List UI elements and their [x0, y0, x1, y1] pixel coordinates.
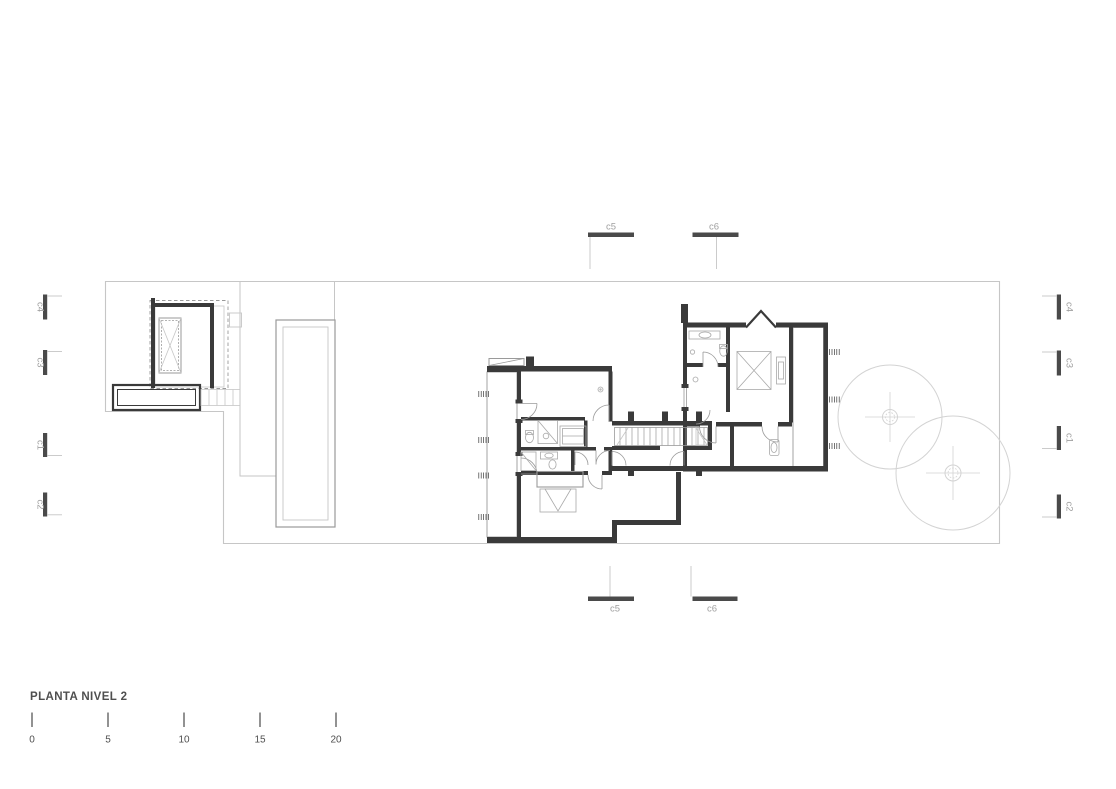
shelf: [777, 357, 786, 384]
section-label: c1: [35, 440, 46, 450]
toilet: [549, 460, 556, 469]
section-marker-c2-right: c2: [1042, 495, 1075, 519]
scale-tick-label: 0: [29, 735, 35, 746]
right-deck: [793, 328, 824, 467]
section-label: c5: [610, 604, 620, 615]
site-boundary: [106, 282, 1000, 544]
section-label: c6: [707, 604, 717, 615]
scale-tick-label: 5: [105, 735, 111, 746]
section-label: c3: [1064, 358, 1075, 368]
scale-tick-label: 20: [330, 735, 342, 746]
section-marker-c6-top: c6: [693, 222, 739, 270]
section-marker-c3-left: c3: [35, 350, 63, 375]
section-label: c6: [709, 222, 719, 233]
pool: [276, 320, 335, 527]
page-title: PLANTA NIVEL 2: [30, 691, 127, 703]
section-label: c5: [606, 222, 616, 233]
entry-steps: [201, 390, 240, 406]
section-marker-c3-right: c3: [1042, 351, 1075, 376]
floor-plan-drawing: c5 c6 c5 c6 c4 c3 c1 c2 c4: [0, 0, 1116, 789]
section-label: c4: [35, 302, 46, 312]
section-label: c1: [1064, 433, 1075, 443]
garage-roof-structure: [113, 298, 242, 410]
section-marker-c1-left: c1: [35, 433, 63, 457]
elevator-shaft: [159, 318, 181, 373]
section-marker-c4-right: c4: [1042, 295, 1075, 320]
bed: [540, 489, 576, 512]
staircase: [615, 428, 708, 446]
bay-window-peak: [746, 311, 776, 328]
section-marker-c2-left: c2: [35, 493, 63, 517]
wall: [151, 298, 155, 388]
toilet: [526, 432, 534, 442]
scale-bar: 0 5 10 15 20: [29, 713, 342, 746]
chimney: [526, 357, 534, 367]
main-building: [479, 304, 839, 543]
section-marker-c1-right: c1: [1042, 426, 1075, 450]
section-label: c4: [1064, 302, 1075, 312]
wall: [151, 303, 214, 307]
sink: [543, 433, 549, 439]
left-deck: [487, 372, 517, 537]
tree-1: [838, 365, 942, 469]
floor-plan-sheet: c5 c6 c5 c6 c4 c3 c1 c2 c4: [0, 0, 1116, 789]
wall: [210, 303, 214, 388]
tree-2: [896, 416, 1010, 530]
section-marker-c5-bottom: c5: [588, 566, 634, 615]
section-marker-c5-top: c5: [588, 222, 634, 270]
section-marker-c6-bottom: c6: [691, 566, 738, 615]
scale-tick-label: 15: [254, 735, 266, 746]
section-label: c2: [1064, 501, 1075, 511]
section-label: c3: [35, 357, 46, 367]
scale-tick-label: 10: [178, 735, 190, 746]
section-marker-c4-left: c4: [35, 295, 63, 320]
section-label: c2: [35, 499, 46, 509]
